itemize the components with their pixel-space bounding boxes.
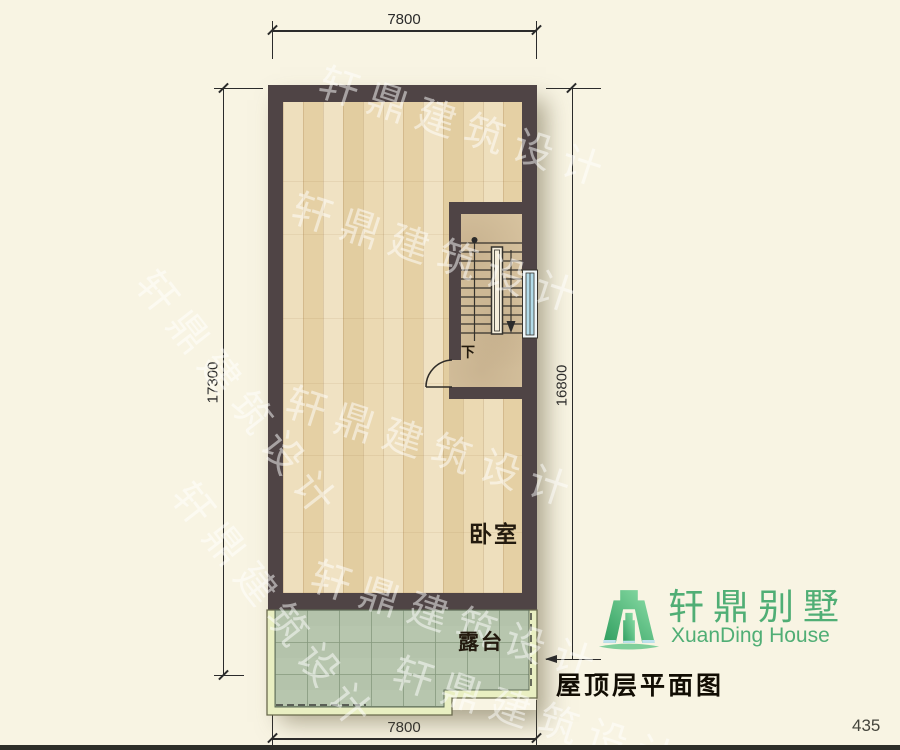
- stair-door: [426, 360, 452, 387]
- floor-plan-sheet: 7800 7800 17300 16800 卧室 露台 下 轩鼎建筑设计 轩鼎建…: [0, 0, 900, 750]
- page-number: 435: [852, 716, 880, 736]
- xuanding-arch-house-icon: [596, 576, 662, 660]
- stair-down-label: 下: [461, 342, 475, 362]
- brand-name-chinese: 轩鼎别墅: [668, 578, 848, 630]
- staircase: [461, 237, 522, 341]
- sheet-bottom-border: [0, 745, 900, 750]
- stair-down-arrow: [507, 321, 516, 333]
- brand-logo: 轩鼎别墅 XuanDing House: [596, 576, 886, 666]
- drawing-title: 屋顶层平面图: [556, 666, 724, 702]
- stair-railing: [492, 247, 503, 334]
- stair-window: [523, 270, 538, 338]
- brand-name-english: XuanDing House: [671, 624, 830, 648]
- terrace-label: 露台: [458, 626, 504, 656]
- bedroom-label: 卧室: [469, 515, 519, 549]
- stair-walkline-start-dot: [472, 237, 478, 243]
